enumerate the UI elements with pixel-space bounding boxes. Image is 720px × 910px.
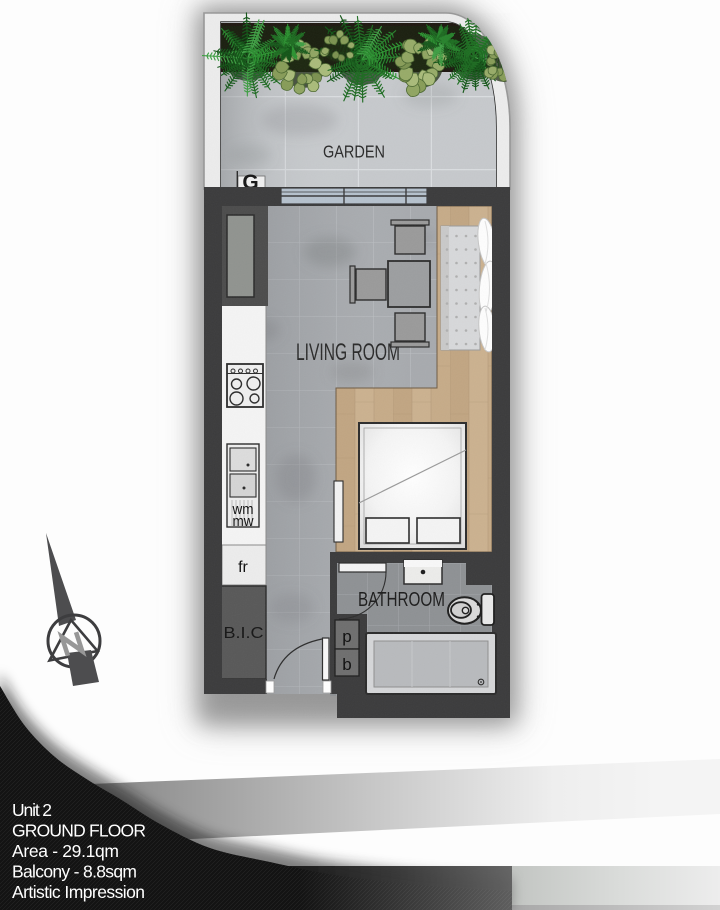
svg-text:GROUND FLOOR: GROUND FLOOR — [12, 821, 146, 841]
svg-text:Area - 29.1qm: Area - 29.1qm — [12, 841, 119, 861]
svg-text:Unit 2: Unit 2 — [12, 800, 52, 820]
svg-text:Balcony - 8.8sqm: Balcony - 8.8sqm — [12, 862, 137, 882]
svg-text:Artistic Impression: Artistic Impression — [12, 882, 145, 902]
